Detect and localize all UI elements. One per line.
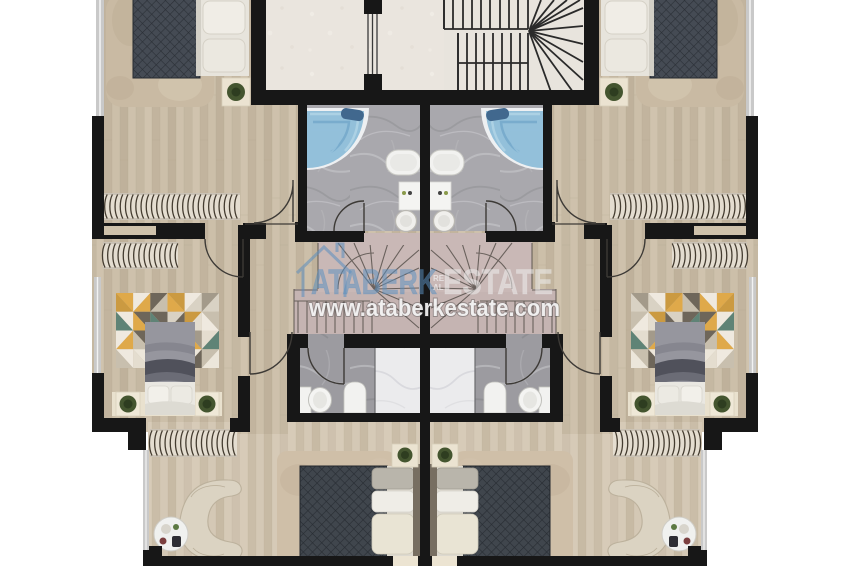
svg-text:www.ataberkestate.com: www.ataberkestate.com	[308, 295, 560, 322]
